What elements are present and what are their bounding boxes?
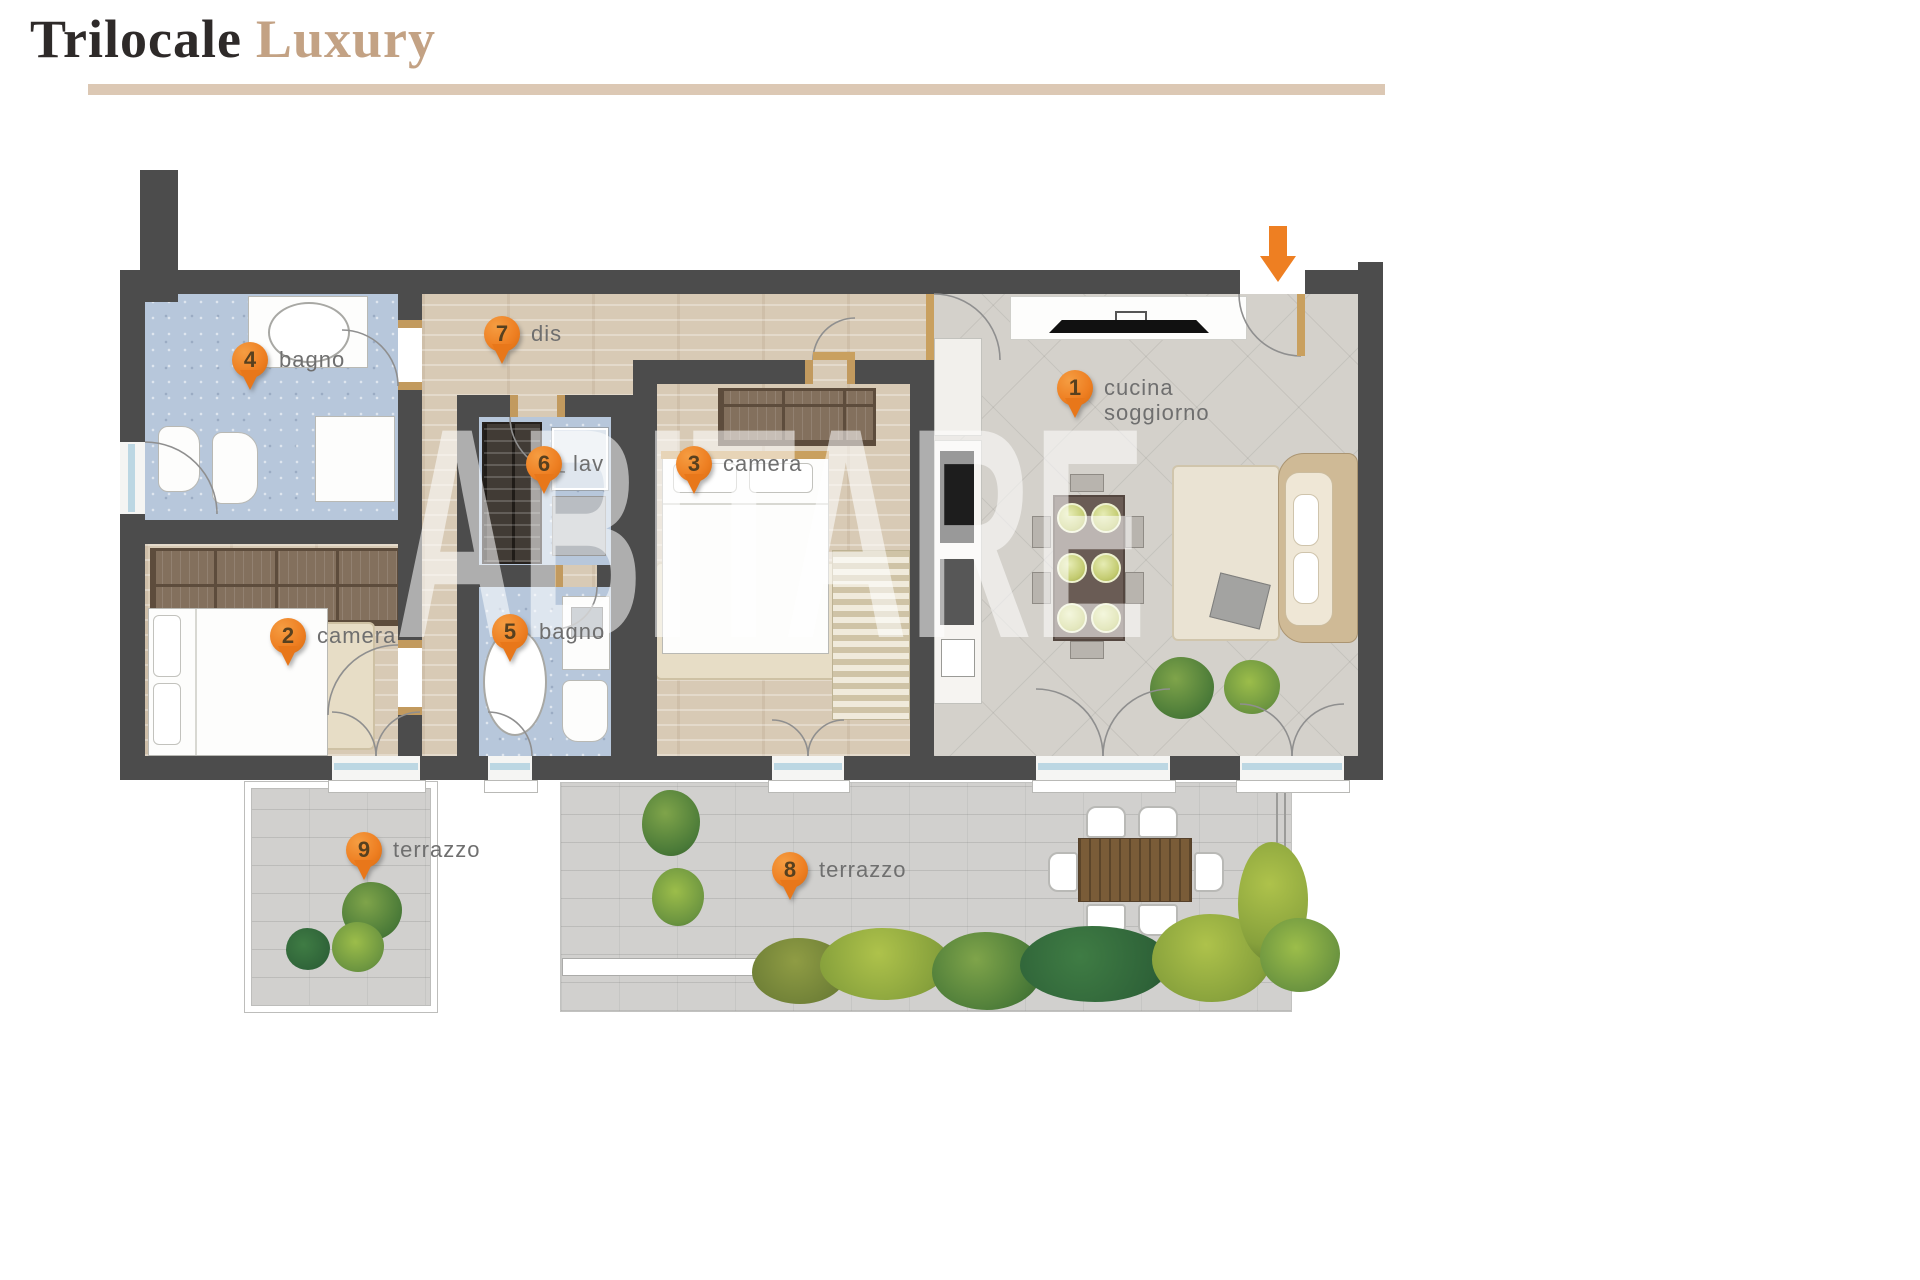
terrace-9 <box>245 782 437 1012</box>
marker-camera-3: 3 camera <box>676 446 802 498</box>
camera3-wardrobe <box>718 388 876 446</box>
room-label: lav <box>573 451 604 476</box>
map-pin-icon: 4 <box>232 342 268 394</box>
window <box>1240 756 1344 780</box>
kitchen-cabinet <box>934 338 982 436</box>
dining-table <box>1053 495 1125 641</box>
dining-chair <box>1032 516 1051 548</box>
room-label: bagno <box>539 619 605 644</box>
door-lintel <box>510 395 518 417</box>
room-label: bagno <box>279 347 345 372</box>
wall-segment <box>597 565 633 587</box>
plant <box>1224 660 1280 714</box>
floorplan: ABITARE 1 cucinasoggiorno 2 camera 3 cam… <box>120 170 1383 1015</box>
terrace8-chair <box>1138 806 1178 838</box>
dining-chair <box>1070 474 1104 492</box>
map-pin-icon: 8 <box>772 852 808 904</box>
wall-segment <box>1170 756 1240 780</box>
door-lintel <box>398 707 422 715</box>
map-pin-icon: 2 <box>270 618 306 670</box>
camera3-striped-rug <box>832 550 910 720</box>
window <box>332 756 420 780</box>
wall-segment <box>398 715 422 756</box>
window <box>120 442 145 514</box>
door-leaf <box>813 352 855 360</box>
window-sill <box>1032 780 1176 793</box>
wall-segment <box>120 270 145 442</box>
door-lintel <box>557 395 565 417</box>
wall-segment <box>140 270 1240 294</box>
dining-chair <box>1032 572 1051 604</box>
map-pin-icon: 6 <box>526 446 562 498</box>
terrace8-chair <box>1086 806 1126 838</box>
marker-camera-2: 2 camera <box>270 618 396 670</box>
bagno4-bidet <box>158 426 200 492</box>
marker-terrazzo-8: 8 terrazzo <box>772 852 906 904</box>
wall-segment <box>1344 756 1383 780</box>
floorplan-page: TrilocaleLuxury <box>0 0 1920 1280</box>
map-pin-icon: 9 <box>346 832 382 884</box>
window <box>772 756 844 780</box>
marker-bagno-4: 4 bagno <box>232 342 345 394</box>
wall-segment <box>120 756 332 780</box>
wall-segment <box>633 360 657 756</box>
terrace8-chair <box>1194 852 1224 892</box>
sofa <box>1278 453 1358 643</box>
wall-segment <box>657 360 813 384</box>
wall-segment <box>457 565 555 587</box>
plant <box>1150 657 1214 719</box>
wall-segment <box>120 514 145 780</box>
wall-segment <box>532 756 772 780</box>
entrance-door-leaf <box>1297 294 1305 356</box>
window-sill <box>328 780 426 793</box>
hedge-bush <box>820 928 950 1000</box>
window-sill <box>1236 780 1350 793</box>
map-pin-icon: 3 <box>676 446 712 498</box>
room-label: dis <box>531 321 562 346</box>
room-label: terrazzo <box>819 857 906 882</box>
door-lintel <box>398 320 422 328</box>
marker-cucina-soggiorno: 1 cucinasoggiorno <box>1057 370 1210 425</box>
map-pin-icon: 1 <box>1057 370 1093 422</box>
room-label: cucinasoggiorno <box>1104 375 1210 425</box>
door-lintel <box>398 640 422 648</box>
kitchen-counter <box>934 440 982 704</box>
door-lintel <box>805 360 813 384</box>
window-sill <box>768 780 850 793</box>
marker-bagno-5: 5 bagno <box>492 614 605 666</box>
door-lintel <box>847 360 855 384</box>
terrace9-bush <box>286 928 330 970</box>
entrance-arrow-icon <box>1260 226 1296 282</box>
bagno4-toilet <box>212 432 258 504</box>
title-primary: Trilocale <box>30 9 242 69</box>
door-leaf <box>926 294 934 360</box>
wall-segment <box>910 360 934 756</box>
dining-chair <box>1125 572 1144 604</box>
window-sill <box>484 780 538 793</box>
marker-lav: 6 lav <box>526 446 604 498</box>
hedge-bush <box>1260 918 1340 992</box>
terrace8-bush <box>642 790 700 856</box>
map-pin-icon: 7 <box>484 316 520 368</box>
title-underline <box>88 84 1385 95</box>
wall-segment <box>420 756 488 780</box>
terrace8-bush <box>652 868 704 926</box>
lav-dryer <box>552 496 606 556</box>
window <box>488 756 532 780</box>
terrace8-chair <box>1048 852 1078 892</box>
terrace8-table <box>1078 838 1192 902</box>
dining-chair <box>1070 641 1104 659</box>
wall-segment <box>565 395 633 417</box>
marker-dis: 7 dis <box>484 316 562 368</box>
wall-segment <box>855 360 910 384</box>
wall-segment <box>1358 262 1383 780</box>
door-lintel <box>555 565 563 587</box>
wall-segment <box>457 395 510 417</box>
wall-segment <box>398 390 422 640</box>
hedge-bush <box>1020 926 1170 1002</box>
title-secondary: Luxury <box>256 9 436 69</box>
tv-niche <box>1010 296 1247 340</box>
door-lintel <box>398 382 422 390</box>
wall-segment <box>145 520 398 544</box>
bagno5-toilet <box>562 680 608 742</box>
map-pin-icon: 5 <box>492 614 528 666</box>
bagno4-shower <box>315 416 395 502</box>
dining-chair <box>1125 516 1144 548</box>
marker-terrazzo-9: 9 terrazzo <box>346 832 480 884</box>
wall-segment <box>398 294 422 320</box>
room-label: camera <box>317 623 396 648</box>
room-label: camera <box>723 451 802 476</box>
wall-segment <box>844 756 1036 780</box>
window <box>1036 756 1170 780</box>
room-label: terrazzo <box>393 837 480 862</box>
page-title: TrilocaleLuxury <box>30 8 436 70</box>
terrace9-bush <box>332 922 384 972</box>
